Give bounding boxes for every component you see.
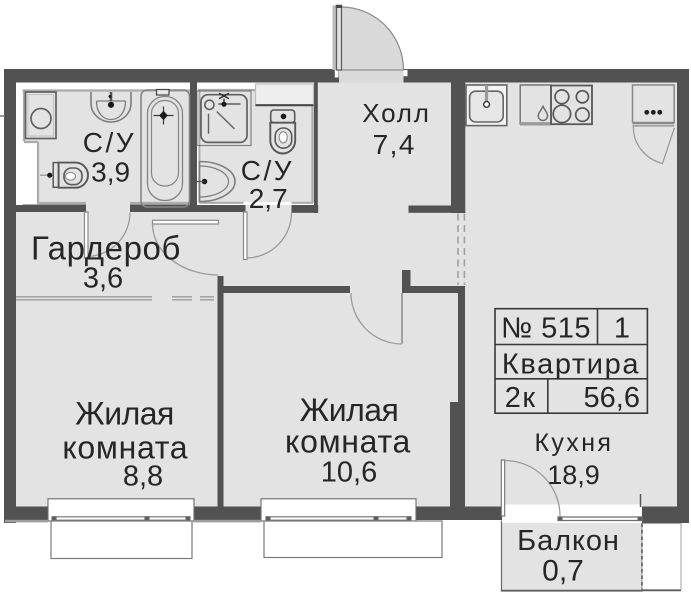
svg-text:3,6: 3,6 bbox=[83, 263, 123, 295]
svg-text:1: 1 bbox=[614, 313, 630, 345]
svg-text:Жилая: Жилая bbox=[75, 396, 174, 432]
svg-text:7,4: 7,4 bbox=[373, 129, 416, 160]
svg-text:10,6: 10,6 bbox=[321, 456, 377, 488]
svg-text:Балкон: Балкон bbox=[517, 525, 620, 557]
svg-text:2,7: 2,7 bbox=[249, 183, 288, 214]
svg-text:Квартира: Квартира bbox=[502, 349, 640, 381]
svg-text:Кухня: Кухня bbox=[534, 429, 613, 457]
svg-text:8,8: 8,8 bbox=[123, 461, 163, 493]
svg-text:С/У: С/У bbox=[83, 127, 136, 158]
svg-text:№ 515: № 515 bbox=[501, 313, 591, 345]
svg-text:2к: 2к bbox=[505, 382, 537, 414]
svg-text:Холл: Холл bbox=[362, 98, 430, 128]
svg-text:Гардероб: Гардероб bbox=[31, 229, 181, 266]
svg-text:56,6: 56,6 bbox=[584, 382, 640, 414]
svg-text:С/У: С/У bbox=[241, 155, 294, 186]
svg-text:3,9: 3,9 bbox=[91, 156, 130, 187]
svg-text:0,7: 0,7 bbox=[542, 554, 584, 587]
svg-text:комната: комната bbox=[285, 424, 411, 460]
svg-text:18,9: 18,9 bbox=[547, 460, 600, 490]
